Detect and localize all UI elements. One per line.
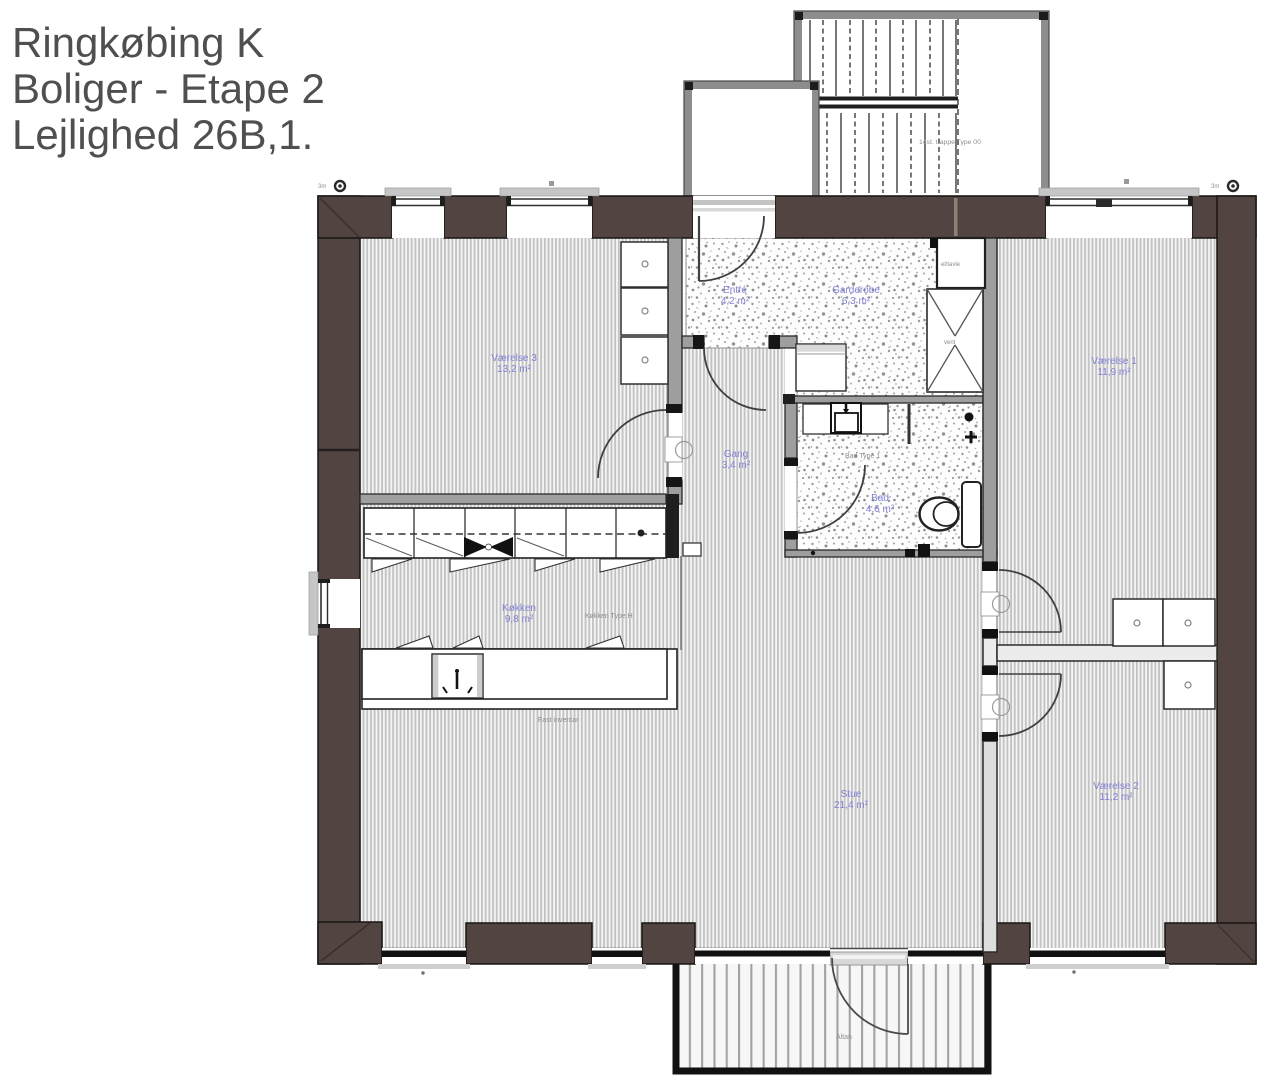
svg-text:3m: 3m [318,184,326,190]
svg-text:11,9 m²: 11,9 m² [1097,367,1131,378]
svg-text:14st. trappe Type 00: 14st. trappe Type 00 [919,139,981,146]
svg-text:Bad Type 1: Bad Type 1 [845,453,880,460]
svg-text:Stue: Stue [841,789,862,800]
svg-text:Boliger - Etape 2: Boliger - Etape 2 [12,65,325,112]
svg-text:Lejlighed 26B,1.: Lejlighed 26B,1. [12,111,313,158]
svg-text:3m: 3m [1211,184,1219,190]
svg-text:4,6 m²: 4,6 m² [866,504,895,515]
svg-text:Entré: Entré [723,285,747,296]
svg-text:Værelse 1: Værelse 1 [1091,356,1137,367]
svg-text:9,8 m²: 9,8 m² [505,614,534,625]
svg-text:el/tavle: el/tavle [941,262,961,268]
svg-text:Gang: Gang [724,449,748,460]
svg-text:Køkken Type H: Køkken Type H [585,613,633,620]
svg-text:Bad: Bad [871,493,889,504]
svg-text:Fast inventar: Fast inventar [538,717,579,724]
svg-text:Værelse 2: Værelse 2 [1093,781,1139,792]
svg-text:13,2 m²: 13,2 m² [497,364,532,375]
svg-text:Køkken: Køkken [502,603,536,614]
svg-text:Værelse 3: Værelse 3 [491,353,537,364]
svg-text:6,3 m²: 6,3 m² [842,296,871,307]
svg-text:Garderobe: Garderobe [832,285,880,296]
svg-text:Altan: Altan [836,1034,852,1041]
svg-text:21,4 m²: 21,4 m² [834,800,869,811]
svg-text:3,4 m²: 3,4 m² [722,460,751,471]
svg-text:11,2 m²: 11,2 m² [1099,792,1133,803]
svg-text:4,2 m²: 4,2 m² [721,296,750,307]
svg-text:vent: vent [944,340,956,346]
svg-text:Ringkøbing K: Ringkøbing K [12,19,264,66]
